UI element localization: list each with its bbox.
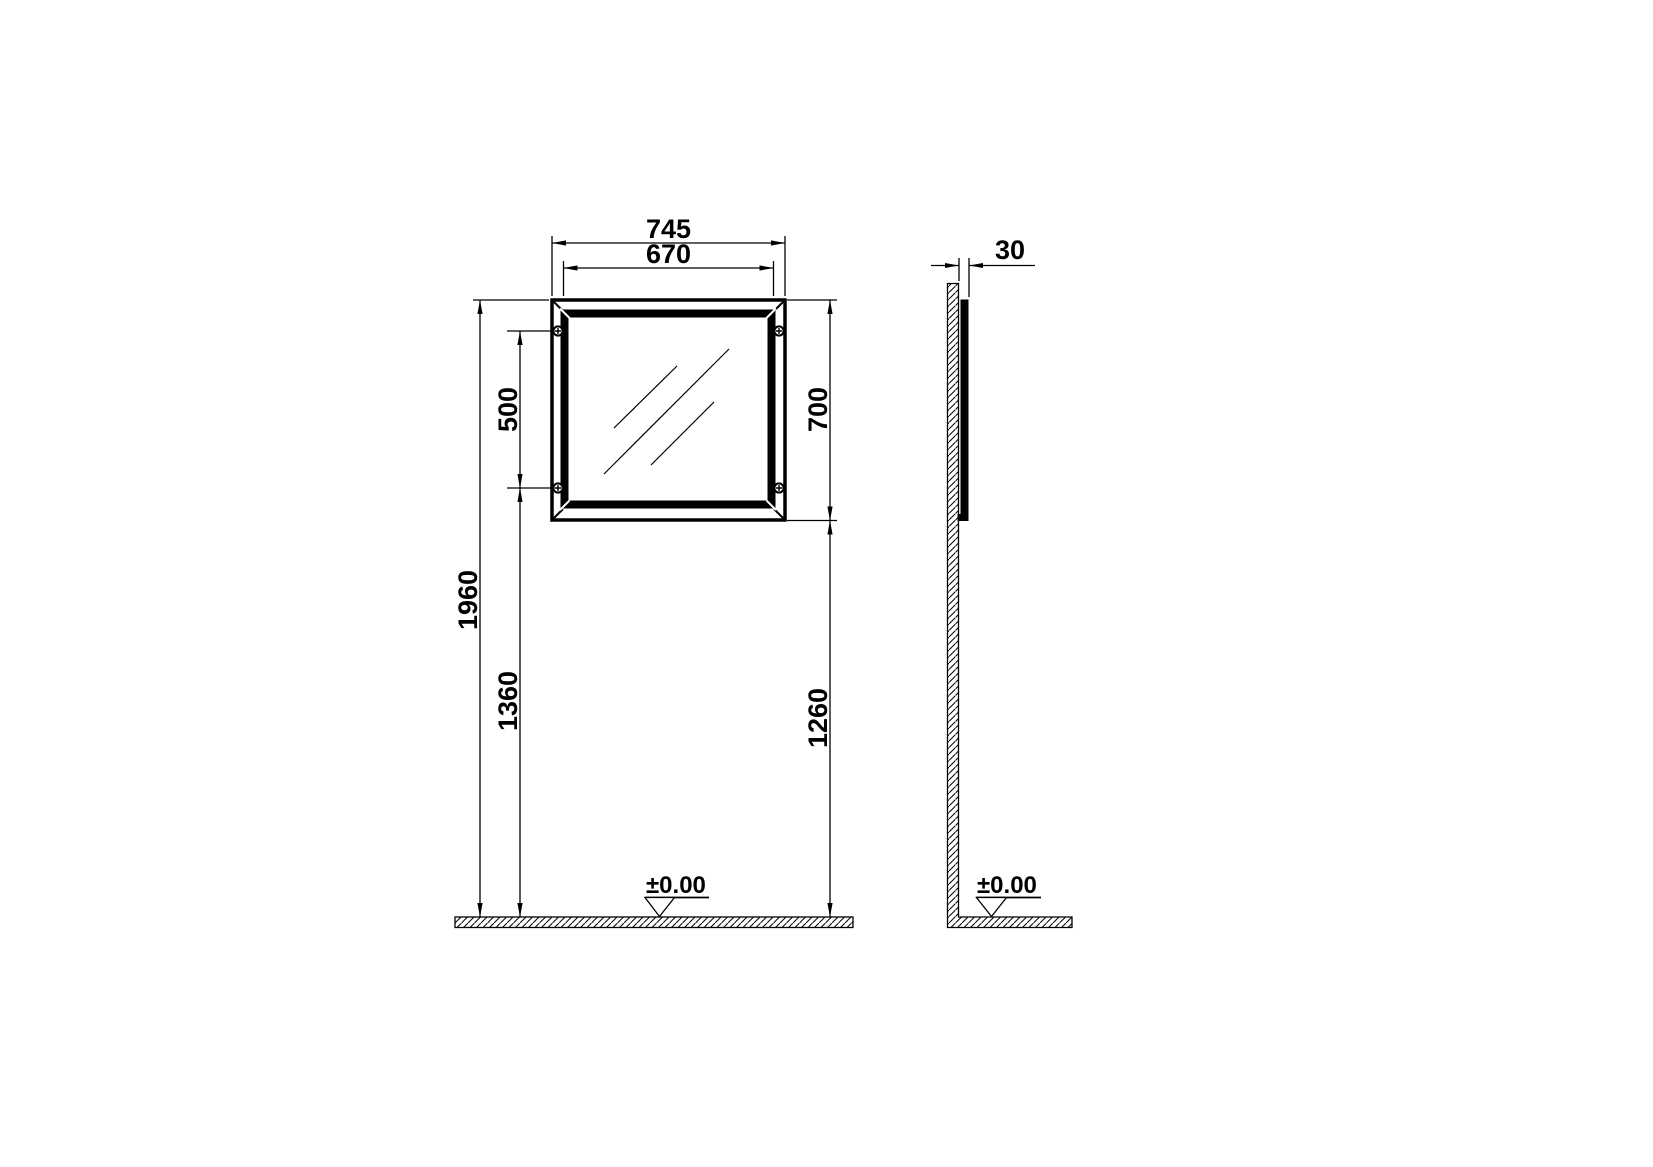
dim-bottom-to-floor-1260: 1260 (787, 521, 837, 918)
dim-width-inner-670: 670 (564, 239, 774, 296)
side-view: 30 ±0.00 (931, 235, 1072, 928)
technical-drawing: ±0.00 745 670 1960 (0, 0, 1653, 1167)
dim-label-670: 670 (646, 239, 691, 269)
dim-label-1960: 1960 (453, 570, 483, 630)
level-triangle-front (645, 898, 675, 917)
level-label-side: ±0.00 (977, 872, 1037, 899)
dim-label-1260: 1260 (803, 688, 833, 748)
dim-label-700: 700 (803, 387, 833, 432)
mounting-screw-top-right (774, 326, 783, 335)
dim-label-1360: 1360 (493, 671, 523, 731)
level-marker-front: ±0.00 (645, 872, 709, 917)
floor-line-front (455, 917, 853, 928)
dim-holes-to-floor-1360: 1360 (493, 488, 523, 917)
dim-height-outer-700: 700 (787, 300, 837, 521)
mounting-screw-bottom-left (553, 483, 562, 492)
level-marker-side: ±0.00 (976, 872, 1041, 917)
mounting-screw-top-left (553, 326, 562, 335)
dim-label-30: 30 (995, 235, 1025, 265)
dim-hole-spacing-500: 500 (493, 331, 554, 488)
mounting-screw-bottom-right (774, 483, 783, 492)
level-triangle-side (977, 898, 1007, 917)
mirror-inner-bezel (565, 314, 772, 505)
dim-label-500: 500 (493, 387, 523, 432)
dim-depth-30: 30 (931, 235, 1035, 297)
level-label-front: ±0.00 (646, 872, 706, 899)
front-view: ±0.00 745 670 1960 (453, 214, 853, 928)
